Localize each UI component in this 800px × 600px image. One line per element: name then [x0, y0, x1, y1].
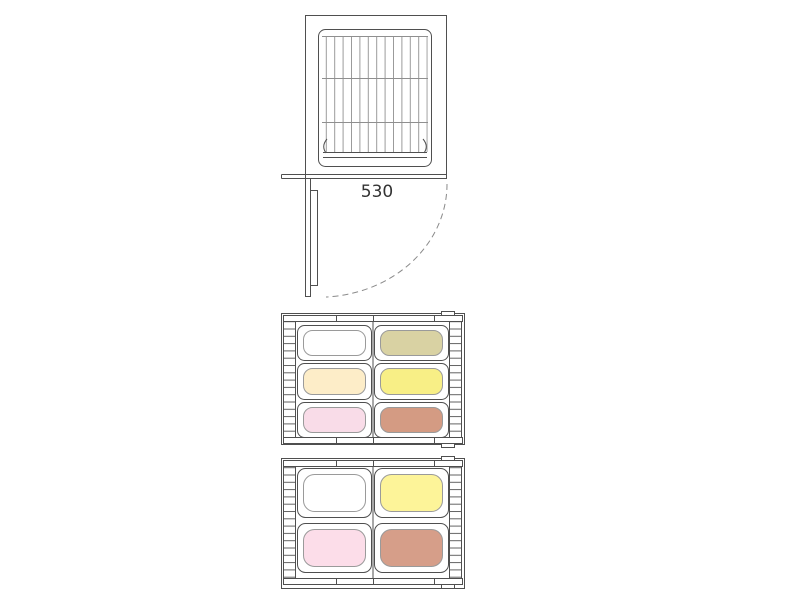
tray-cell-fill	[381, 475, 443, 512]
diagram-canvas: 530	[0, 0, 800, 600]
tray-cell-fill	[304, 369, 366, 395]
tray4-ladder-rail-right	[450, 467, 462, 579]
wire-basket-front-rim	[323, 153, 427, 158]
door-panel-thickness	[311, 191, 318, 286]
tray-cell-fill	[304, 408, 366, 433]
tray-cell-fill	[381, 369, 443, 395]
tray4-ladder-rail-left	[284, 467, 296, 579]
tray-cell-fill	[304, 530, 366, 567]
tray-4-compartments	[282, 457, 465, 589]
catalog-technical-diagram: 530	[0, 0, 800, 600]
tray-cell-fill	[381, 331, 443, 356]
tray-cell-fill	[304, 475, 366, 512]
dimension-label-530: 530	[361, 182, 393, 202]
tray6-ladder-rail-left	[284, 322, 296, 438]
wire-basket-vertical-wires	[325, 36, 428, 152]
door-panel	[306, 179, 311, 297]
tray4-bottom-clip	[442, 585, 455, 589]
tray4-top-clip	[442, 457, 455, 461]
tray-cell-fill	[381, 530, 443, 567]
tray-6-compartments	[282, 312, 465, 448]
cabinet-plan-view	[282, 16, 447, 179]
tray6-ladder-rail-right	[450, 322, 462, 438]
cabinet-bottom-rail	[282, 175, 447, 179]
tray-cell-fill	[381, 408, 443, 433]
tray-cell-fill	[304, 331, 366, 356]
tray6-top-clip	[442, 312, 455, 316]
tray6-bottom-clip	[442, 444, 455, 448]
